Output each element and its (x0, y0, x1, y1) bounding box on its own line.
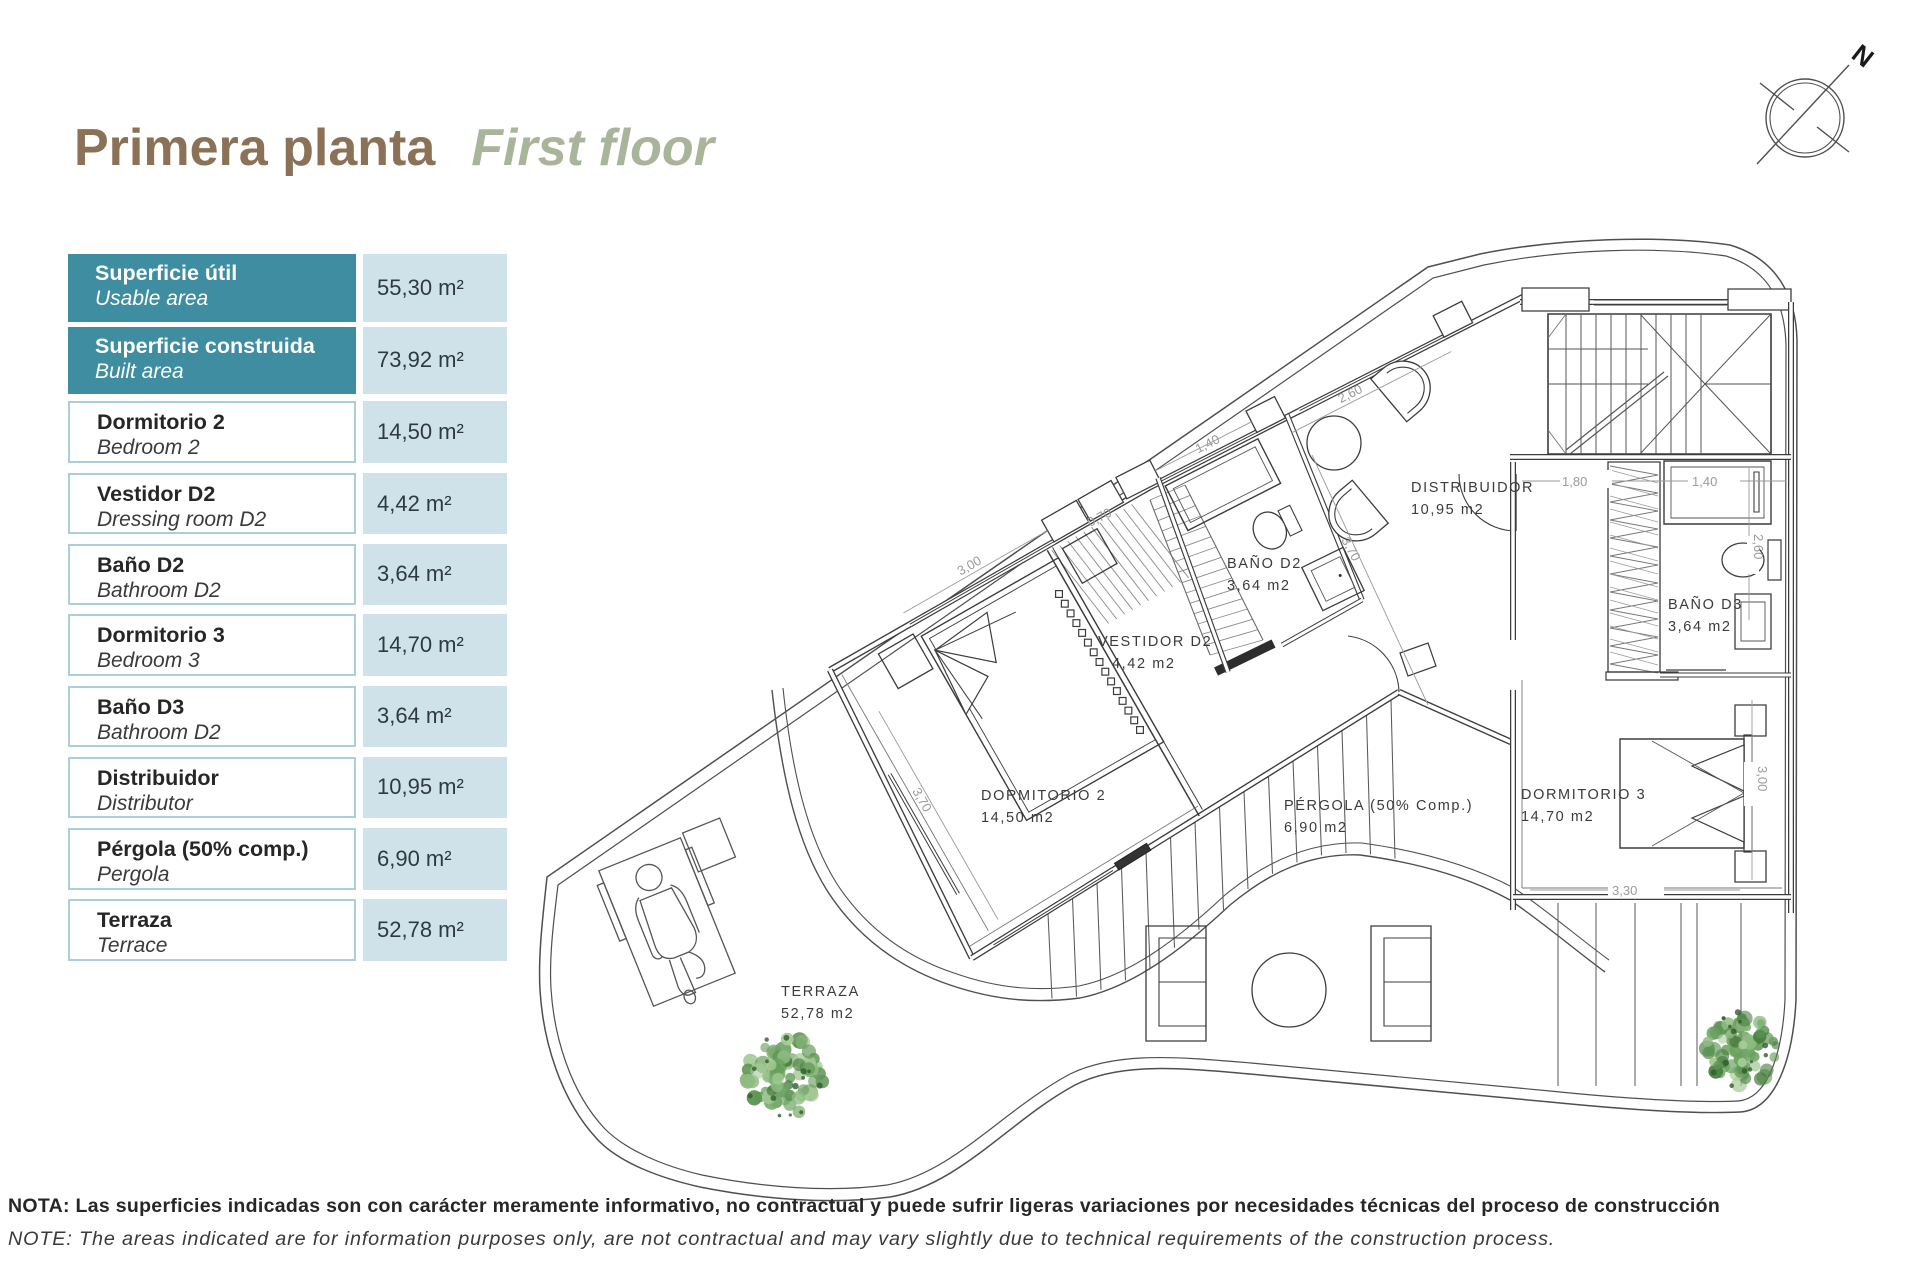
svg-text:3,64 m2: 3,64 m2 (1668, 619, 1732, 635)
svg-text:6,90 m2: 6,90 m2 (1284, 820, 1348, 836)
svg-text:PÉRGOLA (50% Comp.): PÉRGOLA (50% Comp.) (1284, 797, 1473, 814)
svg-text:14,50 m2: 14,50 m2 (981, 810, 1054, 826)
svg-text:DORMITORIO 2: DORMITORIO 2 (981, 788, 1106, 804)
svg-text:3,00: 3,00 (1755, 766, 1770, 791)
svg-text:BAÑO D2: BAÑO D2 (1227, 555, 1302, 572)
svg-text:BAÑO D3: BAÑO D3 (1668, 596, 1743, 613)
svg-text:4,42 m2: 4,42 m2 (1112, 656, 1176, 672)
svg-text:2,60: 2,60 (1751, 534, 1766, 559)
svg-text:DORMITORIO 3: DORMITORIO 3 (1521, 787, 1646, 803)
svg-text:1,40: 1,40 (1692, 474, 1717, 489)
svg-text:10,95 m2: 10,95 m2 (1411, 502, 1484, 518)
svg-text:3,00: 3,00 (955, 553, 984, 579)
svg-text:52,78 m2: 52,78 m2 (781, 1006, 854, 1022)
svg-text:3,64 m2: 3,64 m2 (1227, 578, 1291, 594)
svg-text:14,70 m2: 14,70 m2 (1521, 809, 1594, 825)
svg-text:VESTIDOR D2: VESTIDOR D2 (1098, 634, 1212, 650)
svg-text:3,30: 3,30 (1612, 883, 1637, 898)
svg-text:TERRAZA: TERRAZA (781, 984, 860, 1000)
svg-text:2,60: 2,60 (1335, 381, 1364, 406)
svg-text:N: N (1846, 38, 1879, 73)
svg-text:DISTRIBUIDOR: DISTRIBUIDOR (1411, 480, 1534, 496)
svg-text:1,80: 1,80 (1562, 474, 1587, 489)
